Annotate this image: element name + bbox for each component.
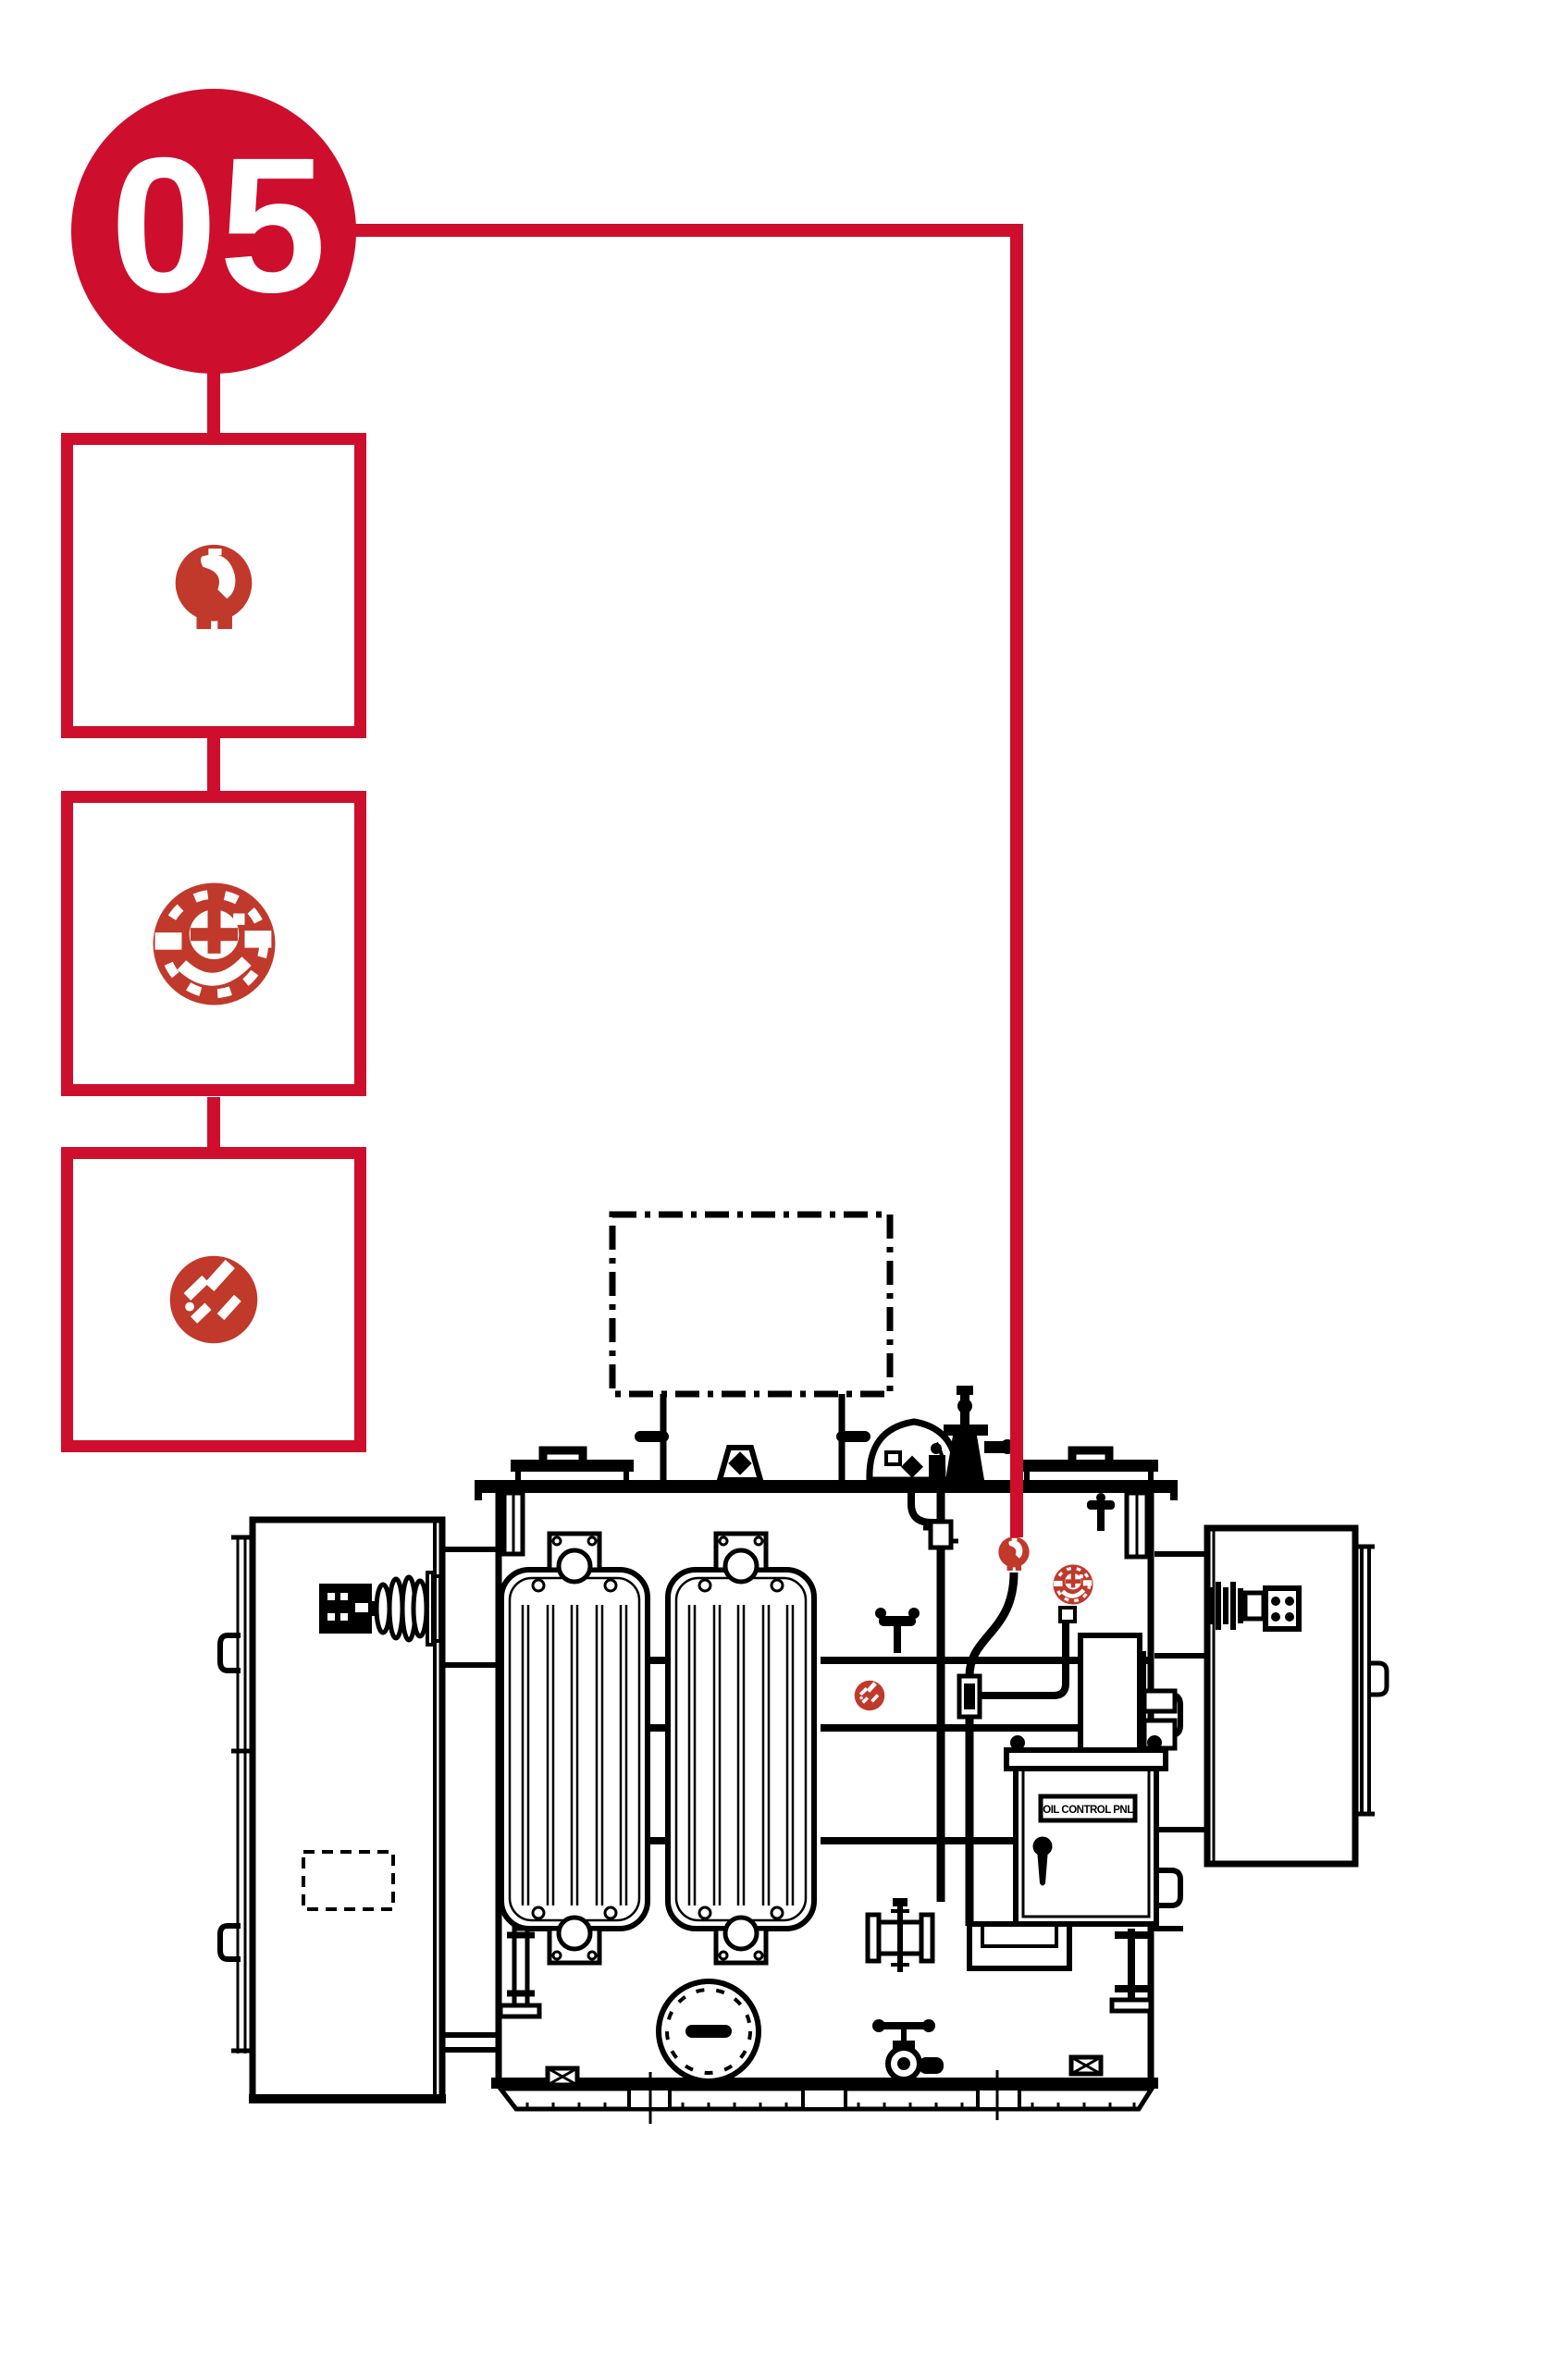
radiator-panel	[501, 1534, 648, 1963]
hv-cable-box	[220, 1520, 499, 2103]
control-cabinet: OIL CONTROL PNL	[969, 1635, 1175, 1968]
filter-valve	[868, 1898, 932, 1972]
step-number: 05	[110, 129, 327, 322]
breather-relief-valve-icon	[161, 533, 266, 638]
connector-box1-box2	[207, 736, 220, 793]
detail-box-breather	[61, 433, 366, 738]
cabinet-label: OIL CONTROL PNL	[1043, 1805, 1133, 1816]
ground-pad	[1071, 2057, 1101, 2074]
detail-box-gauge	[61, 791, 366, 1096]
conservator-tank	[612, 1215, 890, 1480]
oil-dial-gauge-icon	[1053, 1564, 1093, 1604]
connector-badge-box1	[207, 366, 220, 435]
breather-relief-valve-icon	[998, 1536, 1029, 1571]
detail-box-valve	[61, 1147, 366, 1452]
leader-line-vertical	[1010, 224, 1023, 1537]
step-number-badge: 05	[71, 89, 356, 374]
drain-valve	[872, 2019, 944, 2079]
leader-line-horizontal	[342, 224, 1019, 237]
radiator-banks	[501, 1534, 814, 1963]
ground-pad	[548, 2068, 577, 2085]
connector-box2-box3	[207, 1097, 220, 1149]
drain-valve-icon	[855, 1681, 885, 1711]
tank-roof-fittings	[511, 1386, 1158, 1531]
drain-valve-icon	[157, 1243, 270, 1356]
page: OIL CONTROL PNL	[0, 0, 1568, 2368]
oil-dial-gauge-icon	[138, 868, 290, 1020]
radiator-panel	[668, 1534, 814, 1963]
